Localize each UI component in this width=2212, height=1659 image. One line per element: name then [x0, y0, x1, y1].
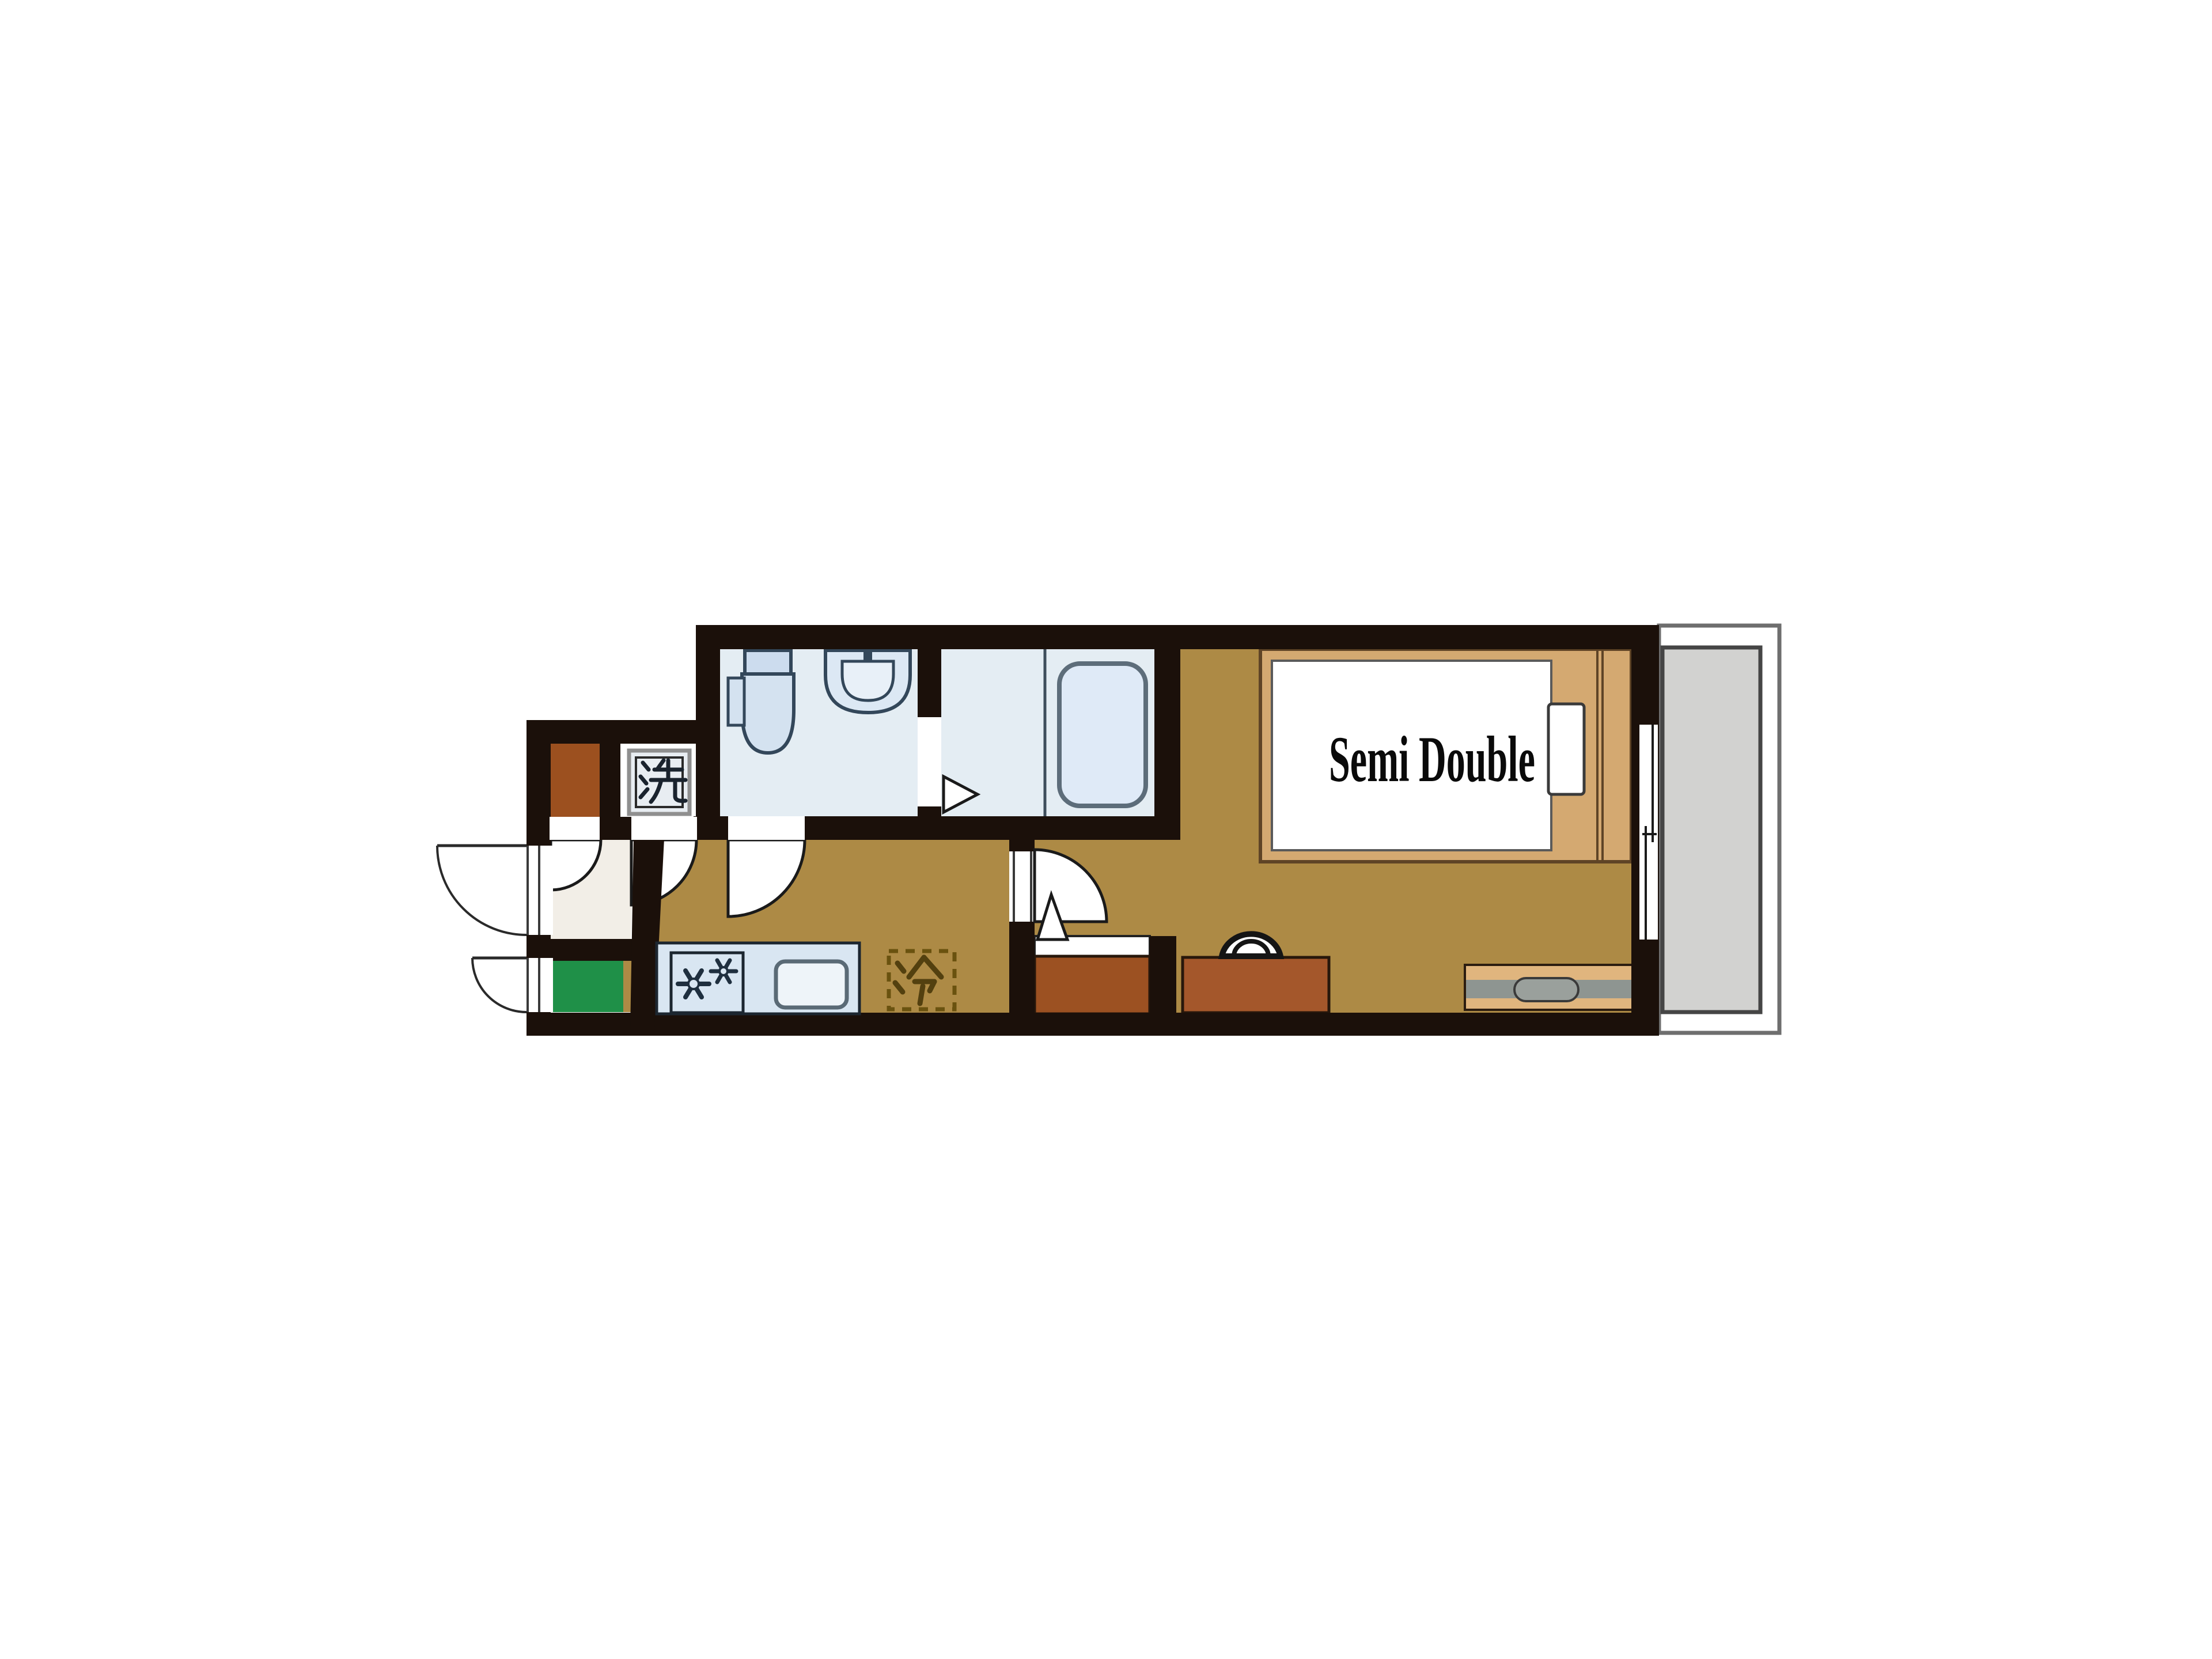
svg-text:Semi Double: Semi Double	[1329, 724, 1535, 796]
